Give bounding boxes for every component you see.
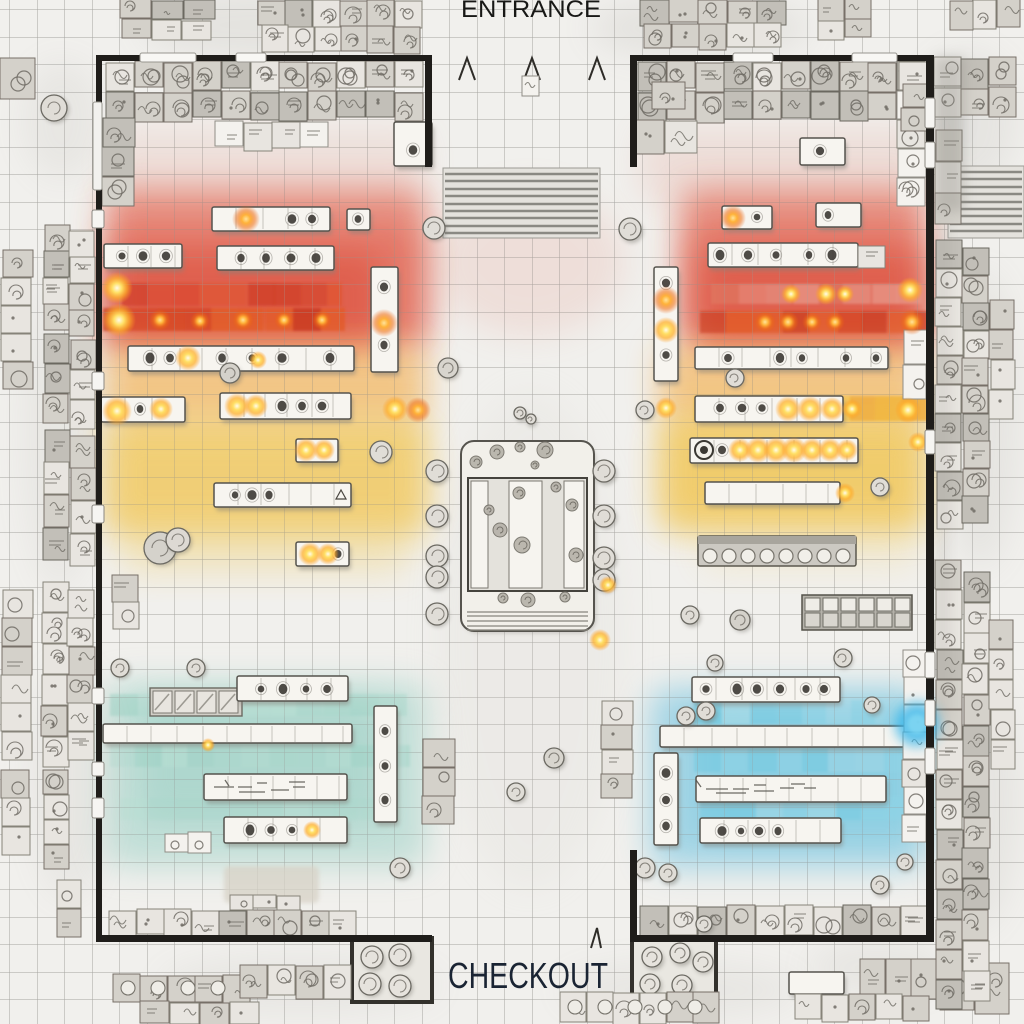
svg-text:ENTRANCE: ENTRANCE — [461, 0, 601, 23]
svg-text:CHECKOUT: CHECKOUT — [448, 955, 608, 996]
